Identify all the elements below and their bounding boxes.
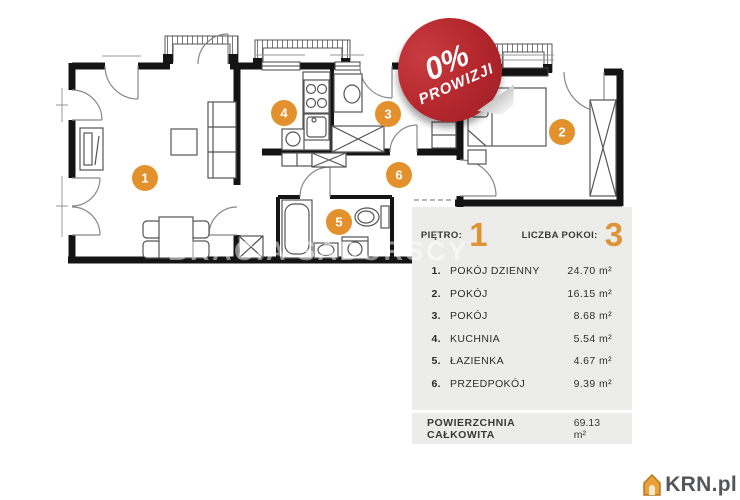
svg-text:2: 2: [558, 125, 565, 140]
room-marker-1: 1: [132, 165, 158, 191]
hall-wardrobe-icon: [312, 153, 346, 167]
room-number: 6.: [427, 378, 441, 390]
sofa-icon: [208, 102, 236, 178]
room-name: PRZEDPOKÓJ: [450, 378, 574, 390]
room-name: ŁAZIENKA: [450, 355, 574, 367]
room-marker-6: 6: [386, 162, 412, 188]
bathtub-icon: [282, 200, 312, 258]
room-row-2: 2. POKÓJ 16.15 m²: [427, 288, 612, 300]
room-row-3: 3. POKÓJ 8.68 m²: [427, 310, 612, 322]
toilet-icon: [355, 206, 389, 228]
promo-badge: 0% PROWIZJI: [396, 16, 516, 114]
room-marker-5: 5: [326, 209, 352, 235]
room-name: POKÓJ: [450, 288, 567, 300]
listing-floorplan-image: 1 2 3 4 5 6: [0, 0, 740, 500]
room-name: POKÓJ DZIENNY: [450, 265, 567, 277]
room-area: 4.67 m²: [574, 355, 612, 367]
stove-icon: [304, 80, 329, 113]
room-row-5: 5. ŁAZIENKA 4.67 m²: [427, 355, 612, 367]
svg-text:6: 6: [395, 168, 402, 183]
room-area: 5.54 m²: [574, 333, 612, 345]
wardrobe-room2-icon: [590, 100, 616, 196]
rooms-count-group: LICZBA POKOI: 3: [522, 220, 623, 250]
desk-icon: [334, 74, 362, 112]
room-row-6: 6. PRZEDPOKÓJ 9.39 m²: [427, 378, 612, 390]
krn-logo[interactable]: KRN.pl: [641, 473, 737, 497]
info-panel-header: PIĘTRO: 1 LICZBA POKOI: 3: [412, 207, 632, 250]
svg-text:4: 4: [280, 106, 288, 121]
room-number: 3.: [427, 310, 441, 322]
hall-wardrobe2-icon: [239, 236, 263, 258]
room-marker-2: 2: [549, 119, 575, 145]
svg-text:3: 3: [384, 107, 391, 122]
room-number: 1.: [427, 265, 441, 277]
room-number: 2.: [427, 288, 441, 300]
total-area-bar: POWIERZCHNIA CAŁKOWITA 69.13 m²: [412, 413, 632, 444]
krn-logo-text: KRN.pl: [665, 473, 737, 497]
room-marker-4: 4: [271, 100, 297, 126]
dining-table-icon: [143, 217, 209, 258]
room-area: 9.39 m²: [574, 378, 612, 390]
room-area: 16.15 m²: [567, 288, 612, 300]
nightstand-icon: [468, 150, 486, 164]
room-row-1: 1. POKÓJ DZIENNY 24.70 m²: [427, 265, 612, 277]
room-list: 1. POKÓJ DZIENNY 24.70 m² 2. POKÓJ 16.15…: [412, 265, 632, 390]
tv-cabinet-icon: [80, 128, 103, 170]
coffee-table-icon: [171, 129, 197, 155]
wardrobe-room3-icon: [332, 126, 384, 152]
room-number: 4.: [427, 333, 441, 345]
total-area-value: 69.13 m²: [574, 417, 612, 441]
room-name: POKÓJ: [450, 310, 574, 322]
svg-text:1: 1: [141, 171, 148, 186]
hall-counter-icon: [282, 153, 312, 166]
washing-machine-icon: [342, 237, 368, 259]
room-area: 8.68 m²: [574, 310, 612, 322]
chest-icon: [432, 122, 456, 148]
svg-text:5: 5: [335, 215, 342, 230]
kitchen-cabinet-icon: [282, 129, 304, 150]
floor-label: PIĘTRO:: [421, 230, 462, 241]
total-area-label: POWIERZCHNIA CAŁKOWITA: [427, 417, 574, 441]
room-area: 24.70 m²: [567, 265, 612, 277]
kitchen-sink-icon: [304, 114, 329, 140]
room-name: KUCHNIA: [450, 333, 574, 345]
floor-group: PIĘTRO: 1: [421, 220, 488, 250]
info-panel-main: PIĘTRO: 1 LICZBA POKOI: 3 1. POKÓJ DZIEN…: [412, 207, 632, 410]
washbasin-icon: [314, 243, 338, 258]
info-panel: PIĘTRO: 1 LICZBA POKOI: 3 1. POKÓJ DZIEN…: [412, 207, 632, 444]
floor-value: 1: [469, 220, 487, 250]
room-row-4: 4. KUCHNIA 5.54 m²: [427, 333, 612, 345]
rooms-count-value: 3: [605, 220, 623, 250]
room-number: 5.: [427, 355, 441, 367]
house-icon: [641, 473, 663, 497]
rooms-count-label: LICZBA POKOI:: [522, 230, 598, 241]
